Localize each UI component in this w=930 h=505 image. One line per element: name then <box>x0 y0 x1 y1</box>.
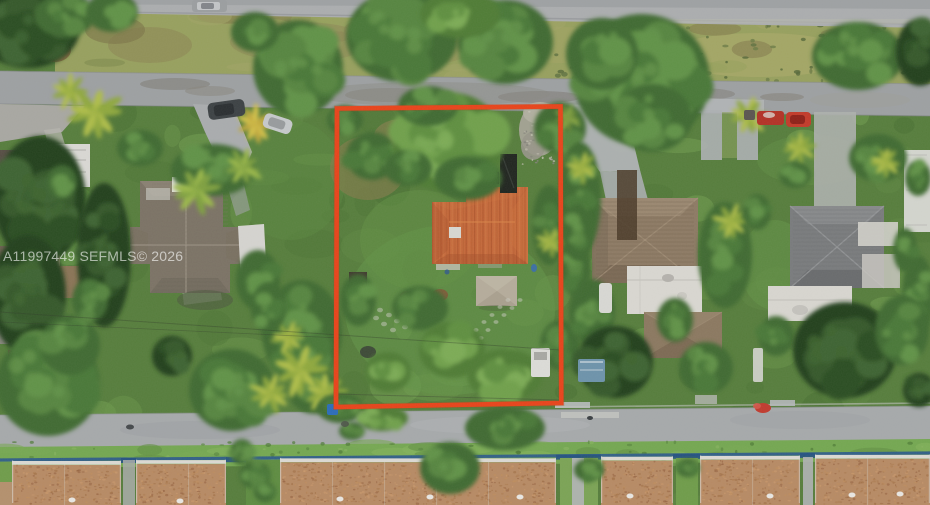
svg-text:A11997449 SEFMLS© 2026: A11997449 SEFMLS© 2026 <box>3 248 183 264</box>
